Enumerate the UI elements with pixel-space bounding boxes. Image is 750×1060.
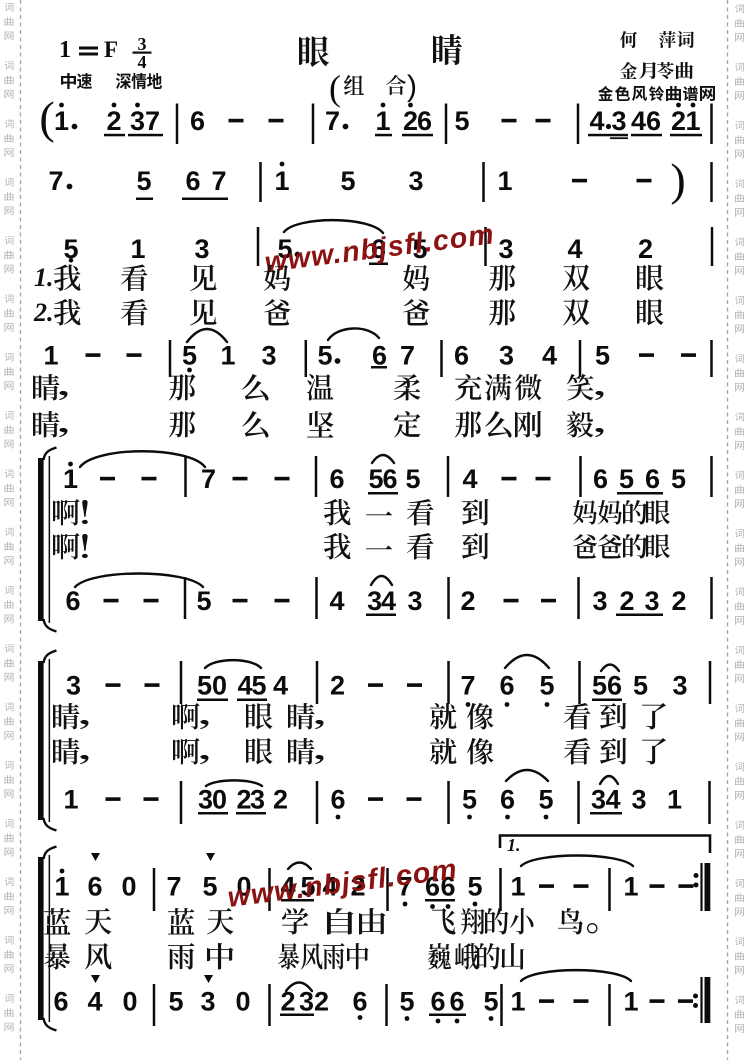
svg-text:1: 1 xyxy=(43,341,58,371)
svg-text:www.nbjsfl.com: www.nbjsfl.com xyxy=(226,853,459,914)
svg-text:2: 2 xyxy=(314,987,329,1017)
svg-text:2: 2 xyxy=(619,586,634,616)
svg-text:5: 5 xyxy=(592,671,607,701)
svg-text:7: 7 xyxy=(460,671,475,701)
svg-text:1: 1 xyxy=(63,785,78,815)
svg-text:3: 3 xyxy=(499,341,514,371)
svg-text:4: 4 xyxy=(237,671,252,701)
svg-text:3: 3 xyxy=(408,166,423,196)
svg-text:2: 2 xyxy=(280,987,295,1017)
svg-text:2: 2 xyxy=(403,106,418,136)
svg-text:7: 7 xyxy=(325,106,340,136)
svg-text:5: 5 xyxy=(454,106,469,136)
svg-text:2: 2 xyxy=(671,106,686,136)
svg-text:4: 4 xyxy=(138,52,147,72)
svg-text:0: 0 xyxy=(122,987,137,1017)
svg-text:2: 2 xyxy=(106,106,121,136)
svg-text:4: 4 xyxy=(87,987,102,1017)
svg-text:3: 3 xyxy=(591,785,606,815)
svg-text:): ) xyxy=(670,154,685,205)
svg-text:5: 5 xyxy=(671,464,686,494)
svg-text:4: 4 xyxy=(381,586,396,616)
svg-text:6: 6 xyxy=(185,166,200,196)
svg-text:6: 6 xyxy=(53,987,68,1017)
svg-text:3: 3 xyxy=(194,234,209,264)
svg-text:1: 1 xyxy=(667,785,682,815)
svg-text:5: 5 xyxy=(368,464,383,494)
svg-text:6: 6 xyxy=(499,671,514,701)
svg-text:6: 6 xyxy=(593,464,608,494)
svg-text:6: 6 xyxy=(330,785,345,815)
svg-text:3: 3 xyxy=(66,671,81,701)
svg-text:4: 4 xyxy=(273,671,288,701)
svg-text:5: 5 xyxy=(633,671,648,701)
svg-text:5: 5 xyxy=(202,872,217,902)
svg-text:5: 5 xyxy=(340,166,355,196)
svg-text:1: 1 xyxy=(685,106,700,136)
svg-text:1: 1 xyxy=(510,872,525,902)
svg-text:(: ( xyxy=(39,92,54,143)
svg-text:0: 0 xyxy=(235,987,250,1017)
svg-text:5: 5 xyxy=(405,464,420,494)
svg-text:2.: 2. xyxy=(33,298,54,327)
svg-text:5: 5 xyxy=(595,341,610,371)
svg-text:6: 6 xyxy=(645,464,660,494)
svg-text:6: 6 xyxy=(646,106,661,136)
svg-text:1: 1 xyxy=(623,987,638,1017)
svg-text:(: ( xyxy=(329,68,341,108)
svg-text:4: 4 xyxy=(605,785,620,815)
svg-text:5: 5 xyxy=(538,785,553,815)
svg-text:): ) xyxy=(407,70,417,103)
svg-text:4: 4 xyxy=(329,586,344,616)
svg-text:7: 7 xyxy=(400,341,415,371)
svg-text:5: 5 xyxy=(251,671,266,701)
svg-text:7: 7 xyxy=(48,166,63,196)
svg-text:F: F xyxy=(104,37,118,62)
svg-text:3: 3 xyxy=(611,106,626,136)
svg-text:5: 5 xyxy=(317,341,332,371)
svg-text:7: 7 xyxy=(211,166,226,196)
svg-text:www.nbjsfl.com: www.nbjsfl.com xyxy=(263,218,496,279)
svg-text:7: 7 xyxy=(166,872,181,902)
svg-text:0: 0 xyxy=(212,785,227,815)
svg-text:5: 5 xyxy=(619,464,634,494)
svg-text:5: 5 xyxy=(182,341,197,371)
svg-text:4: 4 xyxy=(589,106,604,136)
svg-text:1: 1 xyxy=(274,166,289,196)
svg-text:6: 6 xyxy=(417,106,432,136)
svg-text:5: 5 xyxy=(539,671,554,701)
svg-text:1: 1 xyxy=(59,37,71,63)
svg-text:6: 6 xyxy=(500,785,515,815)
svg-text:0: 0 xyxy=(212,671,227,701)
svg-text:5: 5 xyxy=(168,987,183,1017)
svg-text:5: 5 xyxy=(399,987,414,1017)
svg-text:3: 3 xyxy=(592,586,607,616)
svg-text:2: 2 xyxy=(460,586,475,616)
svg-text:3: 3 xyxy=(631,785,646,815)
svg-text:7: 7 xyxy=(201,464,216,494)
svg-text:1: 1 xyxy=(63,464,78,494)
svg-text:1.: 1. xyxy=(34,263,54,292)
svg-text:1: 1 xyxy=(497,166,512,196)
svg-text:3: 3 xyxy=(200,987,215,1017)
svg-text:6: 6 xyxy=(329,464,344,494)
svg-text:1: 1 xyxy=(375,106,390,136)
svg-text:3: 3 xyxy=(367,586,382,616)
svg-text:3: 3 xyxy=(130,106,145,136)
svg-text:3: 3 xyxy=(407,586,422,616)
svg-text:6: 6 xyxy=(65,586,80,616)
svg-text:3: 3 xyxy=(261,341,276,371)
svg-text:3: 3 xyxy=(198,785,213,815)
svg-text:1: 1 xyxy=(623,872,638,902)
svg-text:3: 3 xyxy=(644,586,659,616)
svg-text:4: 4 xyxy=(542,341,557,371)
svg-text:2: 2 xyxy=(273,785,288,815)
svg-text:4: 4 xyxy=(631,106,646,136)
svg-text:1: 1 xyxy=(130,234,145,264)
svg-text:3: 3 xyxy=(250,785,265,815)
svg-text:1.: 1. xyxy=(507,835,521,855)
svg-text:2: 2 xyxy=(671,586,686,616)
svg-text:1: 1 xyxy=(54,106,69,136)
svg-text:2: 2 xyxy=(330,671,345,701)
svg-text:6: 6 xyxy=(430,987,445,1017)
svg-text:5: 5 xyxy=(136,166,151,196)
svg-text:6: 6 xyxy=(449,987,464,1017)
svg-text:6: 6 xyxy=(190,106,205,136)
svg-text:1: 1 xyxy=(220,341,235,371)
svg-text:5: 5 xyxy=(462,785,477,815)
svg-text:5: 5 xyxy=(467,872,482,902)
svg-text:1: 1 xyxy=(510,987,525,1017)
svg-text:2: 2 xyxy=(638,234,653,264)
svg-text:7: 7 xyxy=(145,106,160,136)
svg-text:5: 5 xyxy=(483,987,498,1017)
svg-text:6: 6 xyxy=(382,464,397,494)
svg-text:3: 3 xyxy=(138,34,147,54)
svg-text:4: 4 xyxy=(567,234,582,264)
svg-text:6: 6 xyxy=(607,671,622,701)
svg-text:5: 5 xyxy=(197,671,212,701)
svg-text:1: 1 xyxy=(54,872,69,902)
svg-text:3: 3 xyxy=(672,671,687,701)
svg-text:5: 5 xyxy=(196,586,211,616)
svg-text:3: 3 xyxy=(498,234,513,264)
svg-text:6: 6 xyxy=(352,987,367,1017)
svg-text:0: 0 xyxy=(121,872,136,902)
svg-text:6: 6 xyxy=(454,341,469,371)
svg-text:4: 4 xyxy=(462,464,477,494)
svg-text:6: 6 xyxy=(87,872,102,902)
